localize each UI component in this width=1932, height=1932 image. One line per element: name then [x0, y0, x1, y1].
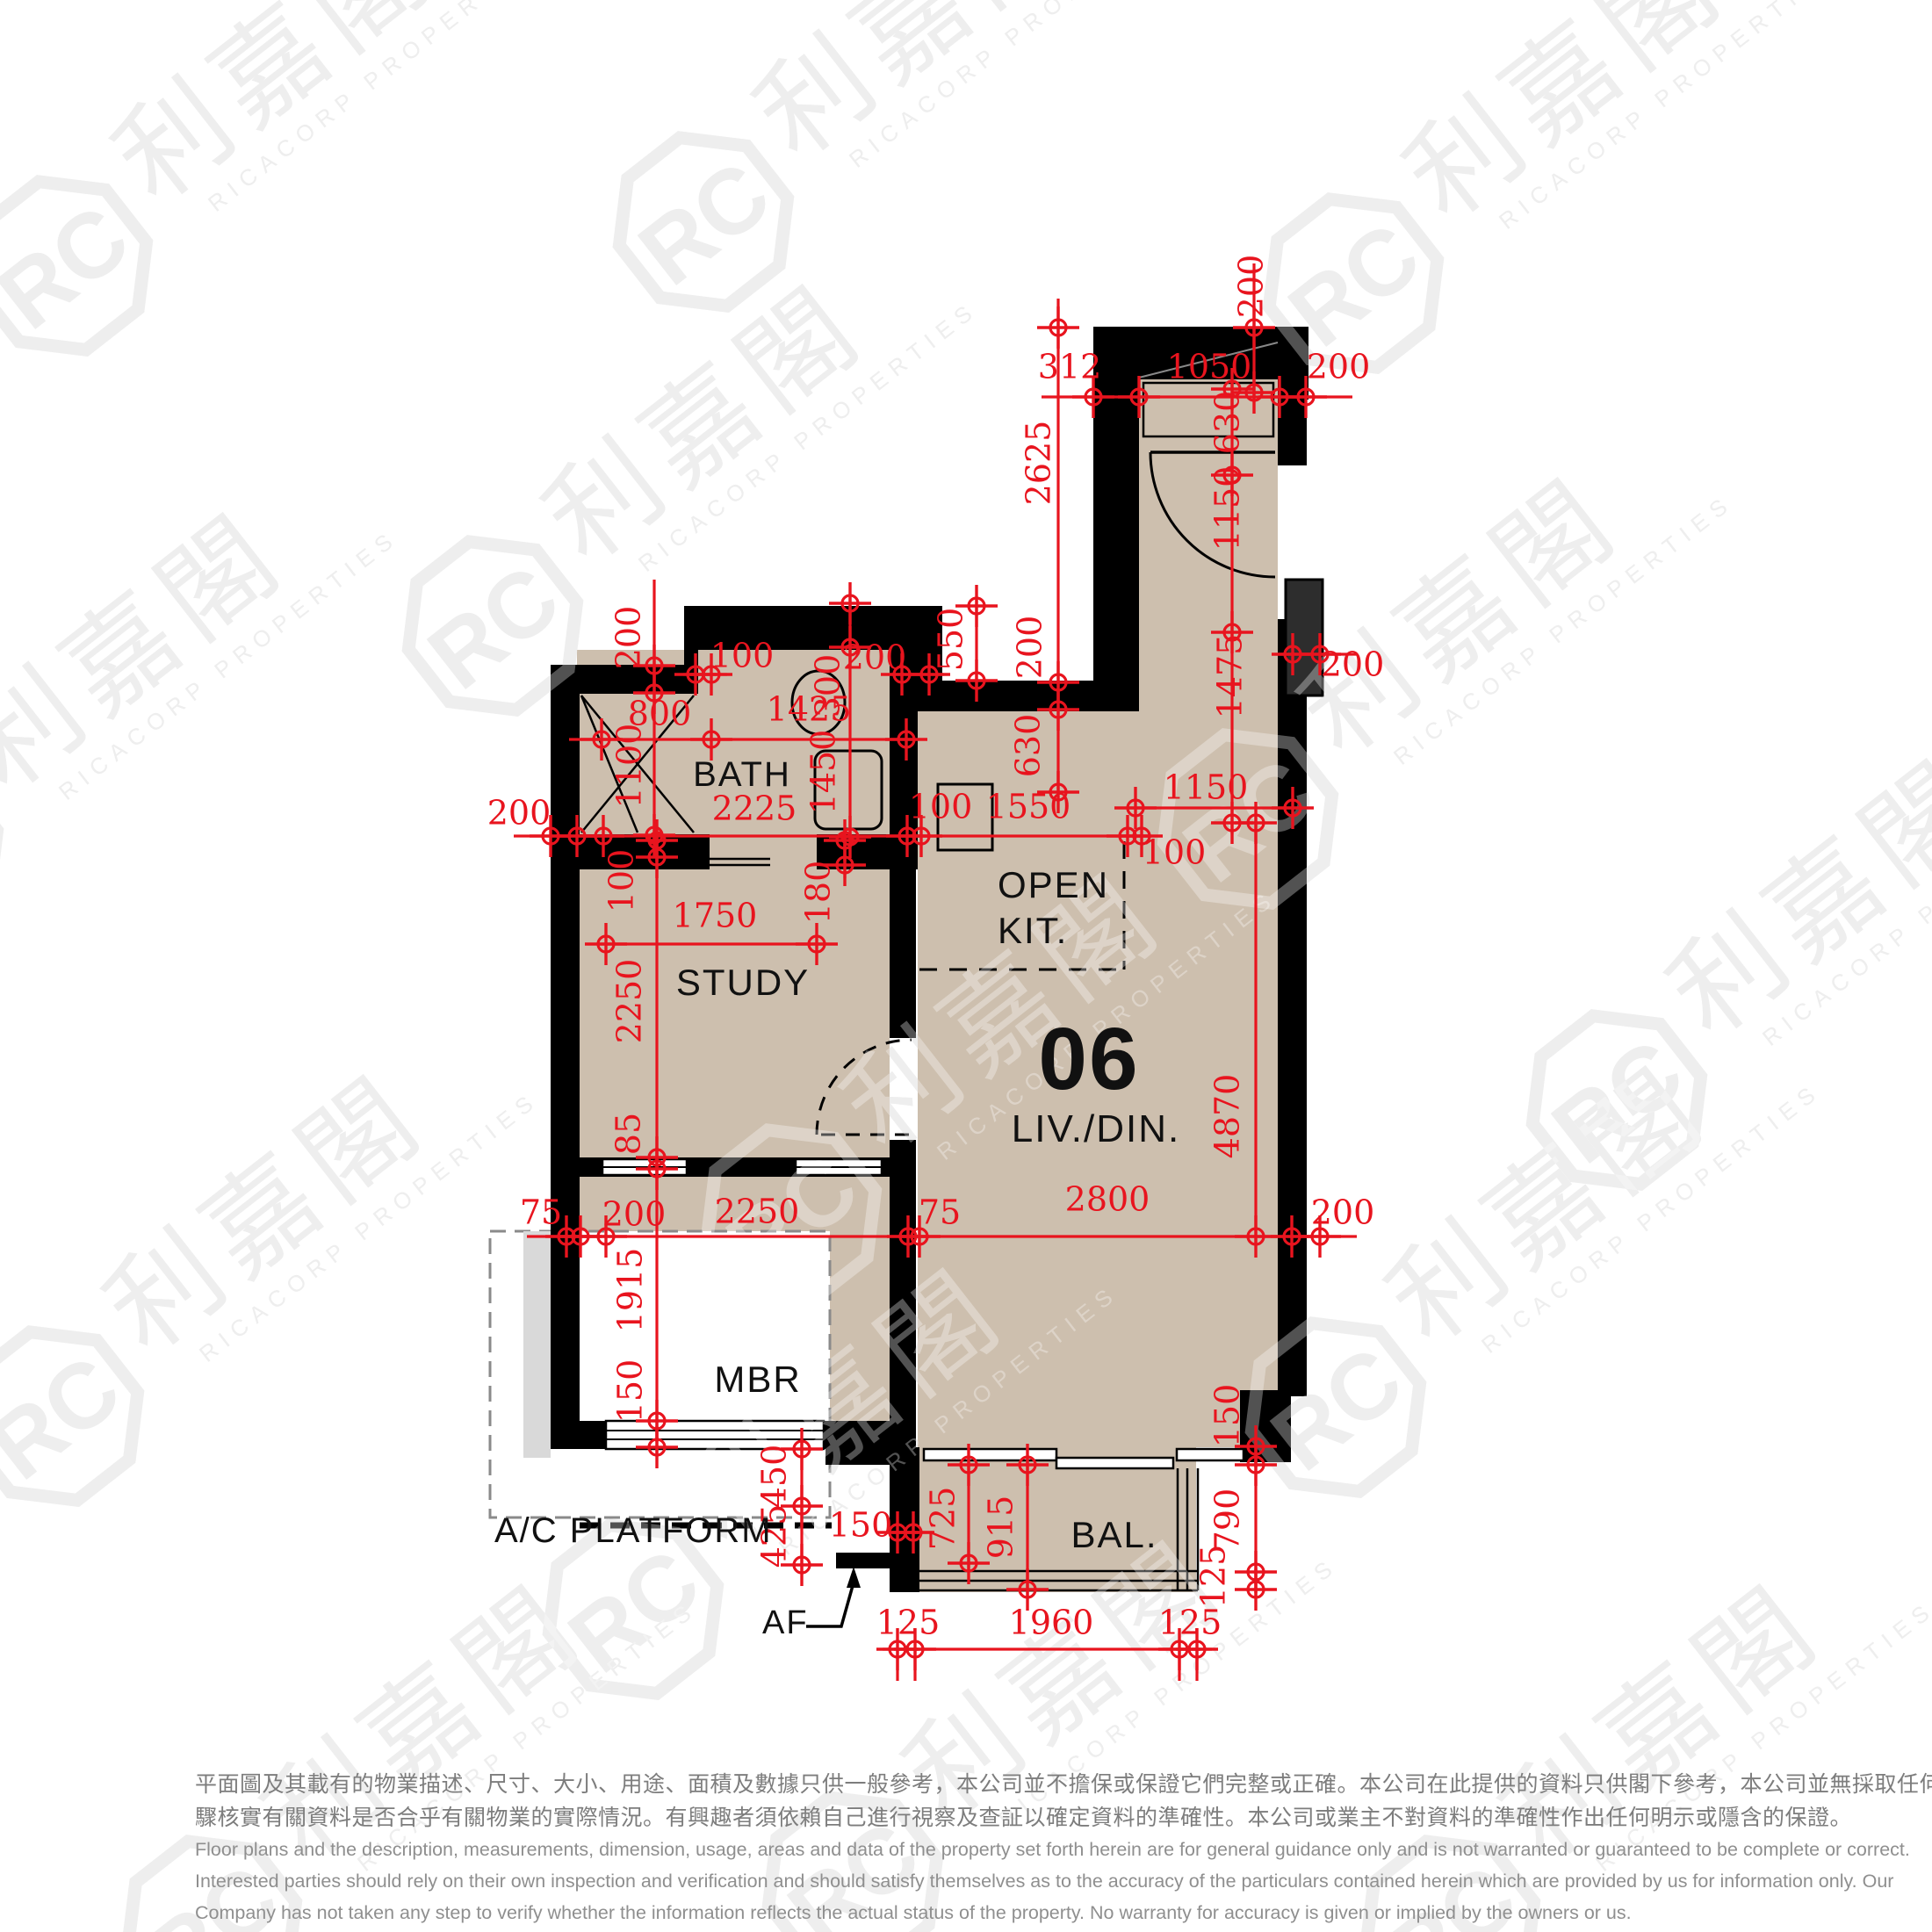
room-label-bath: BATH [693, 755, 791, 794]
watermark: RC利嘉閣RICACORP PROPERTIES [585, 0, 1208, 335]
wall-left [551, 665, 580, 1447]
watermark: RC利嘉閣RICACORP PROPERTIES [1235, 0, 1858, 397]
dimension-label: 180 [799, 861, 838, 925]
dimension-marker [1037, 306, 1079, 349]
dimension-label: 1150 [1164, 768, 1249, 807]
room-label-bal-: BAL. [1071, 1514, 1157, 1555]
dimension-label: 630 [1208, 391, 1247, 455]
dimension-label: 150 [1208, 1384, 1247, 1448]
dimension-label: 790 [1208, 1489, 1247, 1553]
dimension-label: 200 [1321, 645, 1385, 684]
dimension-label: 2625 [1020, 421, 1058, 506]
dimension-label: 200 [1011, 616, 1049, 680]
dimension-label: 100 [909, 788, 973, 826]
dimension-label: 1750 [673, 897, 758, 935]
dimension-label: 100 [710, 637, 775, 675]
dimension-label: 125 [1158, 1604, 1222, 1642]
dimension-label: 125 [1194, 1545, 1233, 1609]
dimension-label: 312 [1038, 348, 1102, 386]
dimension-label: 2225 [712, 789, 797, 828]
svg-text:利嘉閣: 利嘉閣 [1385, 0, 1748, 241]
dimension-label: 1450 [804, 730, 843, 815]
watermark-layer-over: RC利嘉閣RICACORP PROPERTIESRC利嘉閣RICACORP PR… [0, 0, 1932, 1932]
room-label-af: AF [762, 1604, 809, 1641]
watermark: RC利嘉閣RICACORP PROPERTIES [0, 991, 558, 1530]
watermark: RC利嘉閣RICACORP PROPERTIES [0, 429, 417, 968]
watermark: RC利嘉閣RICACORP PROPERTIES [0, 0, 566, 379]
watermark: RC利嘉閣RICACORP PROPERTIES [1217, 982, 1841, 1521]
dimension-label: 450 [755, 1445, 794, 1509]
dimension-label: 150 [611, 1359, 650, 1424]
room-label-kit-: KIT. [998, 910, 1068, 951]
svg-text:利嘉閣: 利嘉閣 [94, 0, 458, 224]
wall-right-upper [1278, 379, 1307, 465]
watermark: RC利嘉閣RICACORP PROPERTIES [1331, 1500, 1932, 1932]
dimension-label: 1050 [1167, 348, 1252, 386]
dimension-label: 550 [932, 608, 970, 672]
dimension-label: 2250 [715, 1193, 800, 1231]
room-label-open: OPEN [998, 864, 1109, 905]
dimension-label: 85 [609, 1113, 648, 1155]
disclaimer-en-line1: Floor plans and the description, measure… [195, 1839, 1910, 1861]
dimension-label: 100 [1143, 833, 1207, 872]
dimension-label: 1915 [611, 1248, 650, 1333]
dimension-label: 2250 [610, 959, 649, 1044]
disclaimer-en-line3: Company has not taken any step to verify… [195, 1902, 1632, 1924]
dimension-label: 725 [924, 1487, 962, 1551]
dimension-label: 1960 [1009, 1604, 1094, 1642]
dimension-label: 200 [1232, 255, 1271, 319]
dimension-label: 125 [876, 1604, 941, 1642]
disclaimer-zh-line1: 平面圖及其載有的物業描述、尺寸、大小、用途、面積及數據只供一般參考，本公司並不擔… [195, 1767, 1932, 1799]
dimension-label: 200 [843, 638, 907, 677]
dimension-label: 75 [520, 1193, 562, 1232]
floorplan-page: RC利嘉閣RICACORP PROPERTIESRC利嘉閣RICACORP PR… [0, 0, 1932, 1932]
dimension-label: 200 [1307, 348, 1371, 386]
af-arrow [806, 1567, 861, 1626]
dimension-label: 1150 [1208, 466, 1247, 551]
dimension-label: 1100 [610, 724, 649, 809]
dimension-label: 100 [602, 849, 641, 913]
dimension-label: 150 [829, 1506, 893, 1545]
dimension-label: 4870 [1208, 1074, 1247, 1159]
room-label-06: 06 [1038, 1010, 1139, 1108]
room-label-liv-din-: LIV./DIN. [1012, 1107, 1180, 1150]
disclaimer-en-line2: Interested parties should rely on their … [195, 1871, 1893, 1892]
dimension-label: 75 [919, 1193, 961, 1232]
floor-plan-svg: RC利嘉閣RICACORP PROPERTIESRC利嘉閣RICACORP PR… [0, 0, 1932, 1932]
af-fin [836, 1553, 896, 1568]
dimension-label: 2800 [1065, 1180, 1150, 1219]
dimension-label: 200 [1311, 1193, 1375, 1232]
wall-mbr-bottom-left [551, 1421, 606, 1449]
dimension-label: 200 [609, 606, 648, 670]
room-label-study: STUDY [676, 962, 810, 1003]
room-label-a-c-platform: A/C PLATFORM [494, 1511, 773, 1550]
dimension-label: 1425 [767, 690, 852, 729]
ac-platform-wall-shadow [523, 1231, 551, 1458]
dimension-label: 1475 [1211, 634, 1250, 719]
dimension-label: 200 [602, 1195, 667, 1234]
disclaimer-zh-line2: 驟核實有關資料是否合乎有關物業的實際情況。有興趣者須依賴自己進行視察及查証以確定… [195, 1800, 1852, 1832]
dimension-label: 915 [982, 1496, 1020, 1560]
dimension-label: 1550 [986, 788, 1071, 826]
dimension-label: 200 [487, 794, 551, 833]
dimension-label: 630 [1009, 714, 1048, 778]
room-label-mbr: MBR [714, 1359, 801, 1400]
